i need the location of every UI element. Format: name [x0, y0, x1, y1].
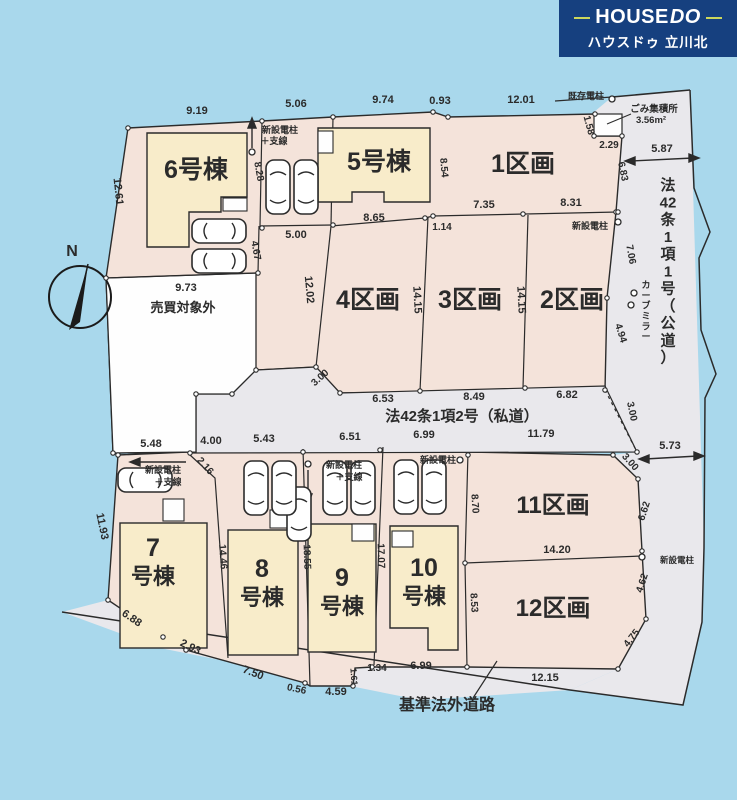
boundary-dot [592, 134, 596, 138]
road-label-public-char: 公 [660, 315, 675, 332]
lot-label-12: 12区画 [516, 595, 591, 622]
boundary-dot [644, 617, 648, 621]
boundary-dot [616, 210, 620, 214]
boundary-dot [331, 223, 335, 227]
boundary-dot [463, 561, 467, 565]
road-label-public-char: 道 [660, 331, 675, 349]
arrow-537-right [689, 154, 699, 162]
curve-mirror-label-char: ブ [641, 300, 650, 311]
dim-label: 0.93 [429, 95, 450, 107]
dim-label: 8.65 [363, 212, 384, 224]
boundary-dot [256, 271, 260, 275]
boundary-dot [111, 451, 115, 455]
dim-label: 12.01 [507, 94, 535, 106]
dim-label: 8.53 [467, 593, 479, 614]
brand-house: HOUSE [595, 6, 669, 29]
building-7-porch [163, 499, 184, 521]
brand-rule-right-icon [706, 17, 722, 19]
road-label-public-char: 1 [664, 263, 672, 280]
new-pole-label: 新設電柱 [420, 454, 456, 465]
curve-mirror-label-char: ー [641, 332, 650, 342]
brand-logo: HOUSEDO [595, 6, 701, 29]
utility-pole-icon [305, 461, 311, 467]
road-label-public-char: 号 [660, 281, 675, 298]
road-label-private: 法42条1項2号（私道） [385, 407, 538, 425]
dim-label: 8.31 [560, 197, 581, 209]
building-label-7: 7 [146, 534, 160, 562]
dim-label: 8.49 [463, 391, 484, 403]
lot-label-3: 3区画 [438, 286, 502, 314]
road-label-public-char: （ [660, 297, 675, 315]
boundary-dot [593, 112, 597, 116]
building-label-8b: 号棟 [240, 585, 285, 610]
road-label-public-char: 42 [660, 194, 677, 211]
dim-label: 5.48 [140, 438, 161, 450]
road-label-public-char: 法 [660, 176, 675, 194]
utility-pole-icon [615, 219, 621, 225]
boundary-dot [126, 126, 130, 130]
garbage-station [594, 114, 622, 136]
dim-label: 11.79 [528, 428, 555, 440]
car-icon [394, 460, 418, 514]
boundary-dot [635, 450, 639, 454]
page: 9.195.069.740.9312.011.582.295.876.8312.… [0, 0, 737, 800]
utility-pole-icon [631, 290, 637, 296]
car-icon [294, 160, 318, 214]
dim-label: 7.35 [473, 199, 494, 211]
dim-label: 6.51 [339, 431, 360, 443]
curve-mirror-label-char: ラ [641, 321, 650, 331]
lot-label-4: 4区画 [336, 286, 400, 314]
boundary-dot [431, 214, 435, 218]
dim-label: 9.74 [372, 94, 394, 106]
dim-label: 4.59 [325, 686, 346, 698]
dim-label: 17.07 [375, 543, 387, 569]
dim-label: 2.29 [599, 140, 619, 151]
dim-label: 1.34 [367, 663, 387, 674]
boundary-dot [116, 453, 120, 457]
dim-label: 1.14 [432, 222, 452, 233]
boundary-dot [338, 391, 342, 395]
dim-label: 6.53 [372, 393, 393, 405]
dim-label: 11.93 [93, 512, 110, 541]
building-label-9: 9 [335, 564, 349, 592]
dim-label: 14.15 [514, 286, 527, 314]
boundary-dot [331, 115, 335, 119]
dim-label: 5.43 [253, 433, 274, 445]
building-5-porch [318, 131, 333, 153]
car-icon [266, 160, 290, 214]
boundary-dot [161, 635, 165, 639]
utility-pole-icon [249, 149, 255, 155]
boundary-dot [104, 276, 108, 280]
boundary-dot [446, 115, 450, 119]
new-pole-label: ＋支線 [335, 471, 362, 482]
lot-label-1: 1区画 [491, 150, 555, 178]
boundary-dot [230, 392, 234, 396]
dim-label: 9.73 [175, 282, 196, 294]
lot-label-11: 11区画 [516, 492, 589, 519]
new-pole-label: 新設電柱 [326, 459, 362, 470]
utility-pole-icon [639, 554, 645, 560]
new-pole-label: ＋支線 [260, 135, 287, 146]
boundary-dot [523, 386, 527, 390]
new-pole-label: 新設電柱 [145, 464, 181, 475]
building-label-10: 10 [410, 554, 438, 582]
boundary-dot [301, 450, 305, 454]
dim-label: 5.00 [285, 229, 306, 241]
car-icon [272, 461, 296, 515]
existing-pole-label: 既存電柱 [568, 90, 604, 101]
boundary-dot [611, 453, 615, 457]
boundary-dot [254, 368, 258, 372]
building-label-6: 6号棟 [164, 156, 229, 184]
boundary-dot [466, 453, 470, 457]
brand-header: HOUSEDO ハウスドゥ 立川北 [559, 0, 737, 57]
boundary-dot [260, 226, 264, 230]
boundary-dot [418, 389, 422, 393]
car-icon [192, 219, 246, 243]
site-plan: 9.195.069.740.9312.011.582.295.876.8312.… [0, 0, 737, 800]
dim-label: 8.54 [437, 158, 450, 179]
curve-mirror-label-char: ー [641, 290, 650, 300]
boundary-dot [188, 451, 192, 455]
curve-mirror-label: カーブミラー [641, 280, 650, 342]
building-9-porch [352, 524, 374, 541]
building-label-9b: 号棟 [320, 594, 365, 619]
boundary-dot [423, 216, 427, 220]
dim-label: 1.61 [348, 668, 359, 686]
building-label-8: 8 [255, 555, 269, 583]
road-label-nonstandard: 基準法外道路 [398, 695, 496, 714]
dim-label: 12.02 [302, 276, 316, 304]
lot-label-2: 2区画 [540, 286, 604, 314]
curve-mirror-label-char: カ [641, 280, 650, 290]
dim-label: 5.73 [659, 440, 680, 452]
road-label-public-char: 項 [660, 246, 676, 263]
boundary-dot [521, 212, 525, 216]
brand-row: HOUSEDO [574, 6, 722, 29]
dim-label: 5.87 [651, 143, 672, 155]
dim-label: 8.70 [468, 494, 480, 515]
dim-label: 12.15 [531, 672, 559, 684]
boundary-dot [620, 134, 624, 138]
utility-pole-icon [628, 302, 634, 308]
new-pole-label: 新設電柱 [572, 220, 608, 231]
boundary-dot [640, 549, 644, 553]
brand-subtitle: ハウスドゥ 立川北 [588, 31, 709, 51]
boundary-dot [314, 365, 318, 369]
compass [49, 264, 111, 330]
car-icon [192, 249, 246, 273]
dim-label: 14.20 [543, 544, 571, 556]
brand-do: DO [670, 6, 701, 29]
building-6-porch [223, 198, 247, 211]
car-icon [422, 460, 446, 514]
dim-label: 5.06 [285, 98, 306, 110]
building-label-5: 5号棟 [347, 148, 412, 176]
dim-label: 6.99 [413, 429, 434, 441]
boundary-dot [465, 665, 469, 669]
car-icon [244, 461, 268, 515]
new-pole-label: 新設電柱 [262, 124, 298, 135]
new-pole-label: 新設電柱 [660, 555, 695, 565]
utility-pole-icon [457, 457, 463, 463]
boundary-dot [636, 477, 640, 481]
boundary-dot [194, 392, 198, 396]
road-label-public-char: 1 [664, 229, 672, 246]
building-label-10b: 号棟 [402, 584, 447, 609]
building-label-7b: 号棟 [131, 564, 176, 589]
dim-label: 14.15 [410, 286, 423, 314]
dim-label: 14.46 [216, 544, 229, 570]
curve-mirror-label-char: ミ [641, 311, 650, 321]
utility-pole-icon [609, 96, 615, 102]
boundary-dot [603, 388, 607, 392]
garbage-station-label: ごみ集積所 [630, 103, 678, 115]
dim-label: 6.82 [556, 389, 577, 401]
dim-label: 18.55 [301, 544, 313, 570]
boundary-dot [378, 448, 382, 452]
road-label-public-char: 条 [659, 211, 676, 229]
dim-label: 12.61 [111, 177, 126, 206]
boundary-dot [616, 667, 620, 671]
road-label-public-char: ） [660, 349, 675, 367]
dim-label: 4.00 [200, 435, 221, 447]
building-10-porch [392, 531, 413, 547]
dim-label: 9.19 [186, 105, 207, 117]
boundary-dot [431, 110, 435, 114]
boundary-dot [106, 598, 110, 602]
garbage-area-label: 3.56m² [636, 115, 666, 126]
excluded-area-label: 売買対象外 [150, 300, 215, 315]
boundary-dot [260, 119, 264, 123]
new-pole-label: ＋支線 [154, 476, 181, 487]
boundary-dot [605, 296, 609, 300]
dim-label: 6.99 [410, 660, 431, 672]
compass-north-label: N [66, 243, 78, 260]
brand-rule-left-icon [574, 17, 590, 19]
